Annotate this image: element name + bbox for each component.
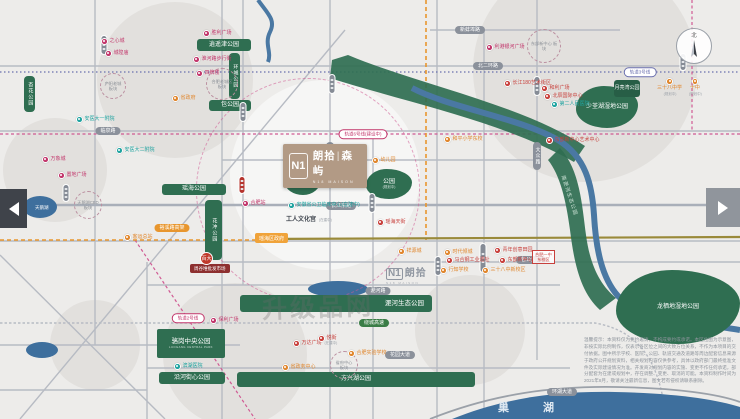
poi-dot-icon (203, 30, 210, 37)
poi-dot-icon (210, 317, 217, 324)
poi-marker: 第二人民医院 (551, 101, 590, 108)
poi-marker: 百大 (200, 252, 213, 265)
poi-dot-icon (377, 219, 384, 226)
road-pill: 轨道6号线(建设中) (339, 129, 388, 139)
road-pill: 临泉路 (95, 127, 120, 135)
poi-marker: 安徽省公卫临床中心(在建中) (288, 202, 360, 209)
poi-marker: 万象城 (42, 156, 66, 163)
poi-dot-icon (172, 95, 179, 102)
project-name: 朗拾|森屿 (313, 148, 361, 178)
poi-dot-icon (42, 156, 49, 163)
poi-marker: 悦街 (318, 335, 337, 342)
poi-marker: 幼儿园 (372, 157, 396, 164)
poi-marker: 合肥站 (242, 200, 266, 207)
poi-marker: 省政府 (172, 95, 196, 102)
poi-dot-icon (288, 202, 295, 209)
poi-dot-icon (242, 200, 249, 207)
project-names: 朗拾|森屿 N18 MAISON (313, 148, 361, 184)
poi-dot-icon (446, 257, 453, 264)
poi-marker: 客运总站 (124, 234, 153, 241)
park-label: 沿河街心公园 (159, 372, 225, 384)
poi-marker: 保利广场 (210, 317, 239, 324)
phase2-latin-name: N18 MAISON (386, 282, 427, 285)
poi-dot-icon (398, 248, 405, 255)
poi-dot-icon (174, 363, 181, 370)
chevron-right-icon (718, 201, 728, 215)
poi-dot-icon (293, 340, 300, 347)
road-pill: 花园大道 (385, 351, 415, 359)
phase2-logo-mark: N1 (386, 268, 403, 280)
metro-station-icon (369, 193, 376, 213)
poi-marker: 利港银河广场 (486, 44, 525, 51)
road-pill: 环湖大道 (547, 388, 577, 396)
next-image-button[interactable] (706, 188, 740, 227)
poi-marker: 行知学校 (440, 267, 469, 274)
park-label: 月亮湾公园 (614, 80, 640, 97)
poi-dot-icon (193, 56, 200, 63)
district-zone-circle: 天鹅湖CBD 板块 (74, 191, 102, 219)
phase2-name: 朗拾 (405, 269, 427, 279)
poi-dot-icon (101, 38, 108, 45)
poi-dot-icon (499, 257, 506, 264)
project-phase2-marker: N1朗拾 N18 MAISON (386, 268, 427, 285)
poi-dot-icon (116, 147, 123, 154)
project-logo-mark: N1 (289, 153, 308, 179)
poi-dot-icon (76, 116, 83, 123)
poi-marker: 四牌楼 (196, 70, 220, 77)
poi-marker: 青年创意田园 (494, 247, 533, 254)
watermark: 升级品网 (261, 286, 374, 326)
poi-dot-icon (482, 267, 489, 274)
poi-dot-icon (105, 50, 112, 57)
park-label: 杏花公园 (24, 76, 35, 112)
poi-dot-icon (372, 157, 379, 164)
district-zone-circle: 庐阳老城 板块 (100, 73, 126, 99)
poi-dot-icon (666, 78, 673, 85)
poi-marker: 滨湖医院 (174, 363, 203, 370)
poi-dot-icon (504, 80, 511, 87)
poi-dot-icon (196, 70, 203, 77)
metro-station-icon (240, 102, 247, 122)
poi-dot-icon (541, 85, 548, 92)
poi-dot-icon (551, 101, 558, 108)
park-label: 花冲公园 (205, 200, 222, 260)
poi-marker: 城隍庙 (105, 50, 129, 57)
park-label: 瑶海公园 (162, 184, 226, 195)
poi-marker: 瑶海天街 (377, 219, 406, 226)
poi-marker: 时代倾城 (444, 249, 473, 256)
metro-station-icon (63, 184, 70, 202)
project-logo-card: N1 朗拾|森屿 N18 MAISON (283, 144, 367, 188)
poi-marker: 工人文化宫(在建中) (286, 217, 332, 224)
park-label: 骆岗中央公园LUOGANG CENTRAL PARK (157, 329, 225, 358)
road-pill: 大众路 (533, 142, 541, 170)
compass-north-label: 北 (691, 31, 697, 39)
poi-marker: 马合钢工业遗址 (446, 257, 490, 264)
road-pill: 裕溪路高架 (154, 224, 189, 232)
poi-marker: 和利广场 (541, 85, 570, 92)
poi-marker: 省政务中心 (282, 364, 316, 371)
poi-dot-icon (124, 234, 131, 241)
poi-marker: 三十八中学(规划中) (657, 78, 682, 97)
poi-dot-icon (318, 335, 325, 342)
poi-marker: 东部新中心艺术中心 (546, 137, 600, 144)
poi-marker: 胜利广场 (203, 30, 232, 37)
poi-dot-icon (544, 93, 551, 100)
poi-marker: 周谷堆批发市场 (190, 264, 230, 273)
road-pill: 新蚌埠路 (455, 26, 485, 34)
poi-marker: 之心城 (101, 38, 125, 45)
poi-marker: 置地广场 (58, 172, 87, 179)
poi-marker: 安医大二附院 (116, 147, 155, 154)
poi-dot-icon (444, 249, 451, 256)
park-label: 龙栖地湿地公园 (616, 270, 740, 344)
poi-marker: 和平小学东校 (444, 136, 483, 143)
poi-dot-icon (282, 364, 289, 371)
poi-marker: 合肥一中东校区 (532, 250, 555, 264)
park-label: 方兴湖公园 (237, 372, 475, 387)
compass: 北 (676, 28, 712, 64)
location-map: 天鹅湖 逍遥津公园环城公园包公园瑶海公园花冲公园杏花公园公园(规划中)公园(规划… (0, 0, 740, 419)
poi-dot-icon (444, 136, 451, 143)
park-label: 南淝河生态公园 (559, 185, 577, 208)
poi-marker: 淮河路步行街 (193, 56, 232, 63)
poi-dot-icon (440, 267, 447, 274)
project-latin-name: N18 MAISON (313, 180, 361, 184)
park-label: 逍遥津公园 (197, 39, 251, 51)
poi-marker: 安医大一附院 (76, 116, 115, 123)
disclaimer-text: 温馨提示：本资料仅为要约邀请，不构成要约或承诺。本区位图为示意图，非按实际比例制… (584, 337, 736, 397)
poi-dot-icon (58, 172, 65, 179)
district-zone-circle: 东部新中心 板块 (527, 29, 561, 63)
metro-station-icon (329, 74, 336, 94)
metro-station-icon (239, 176, 246, 194)
road-pill: 轨道3号线 (624, 67, 657, 77)
chevron-left-icon (9, 202, 19, 216)
poi-marker: 瑶海区政府 (255, 233, 288, 243)
poi-marker: 北辰国际中心 (544, 93, 583, 100)
mall-logo-icon: 百大 (200, 252, 213, 265)
poi-dot-icon (486, 44, 493, 51)
road-pill: 北二环路 (473, 62, 503, 70)
poi-marker: 祥源城 (398, 248, 422, 255)
poi-dot-icon (494, 247, 501, 254)
poi-marker: 十中(规划中) (688, 78, 702, 97)
poi-dot-icon (692, 78, 699, 85)
road-pill: 轨道2号线 (172, 313, 205, 323)
lake-label: 巢湖 (498, 399, 588, 415)
poi-dot-icon (546, 137, 553, 144)
poi-dot-icon (348, 350, 355, 357)
poi-marker: 三十八中新校区 (482, 267, 526, 274)
compass-needle-icon (686, 39, 702, 61)
poi-marker: 合肥实验学校 (348, 350, 387, 357)
previous-image-button[interactable] (0, 189, 27, 228)
